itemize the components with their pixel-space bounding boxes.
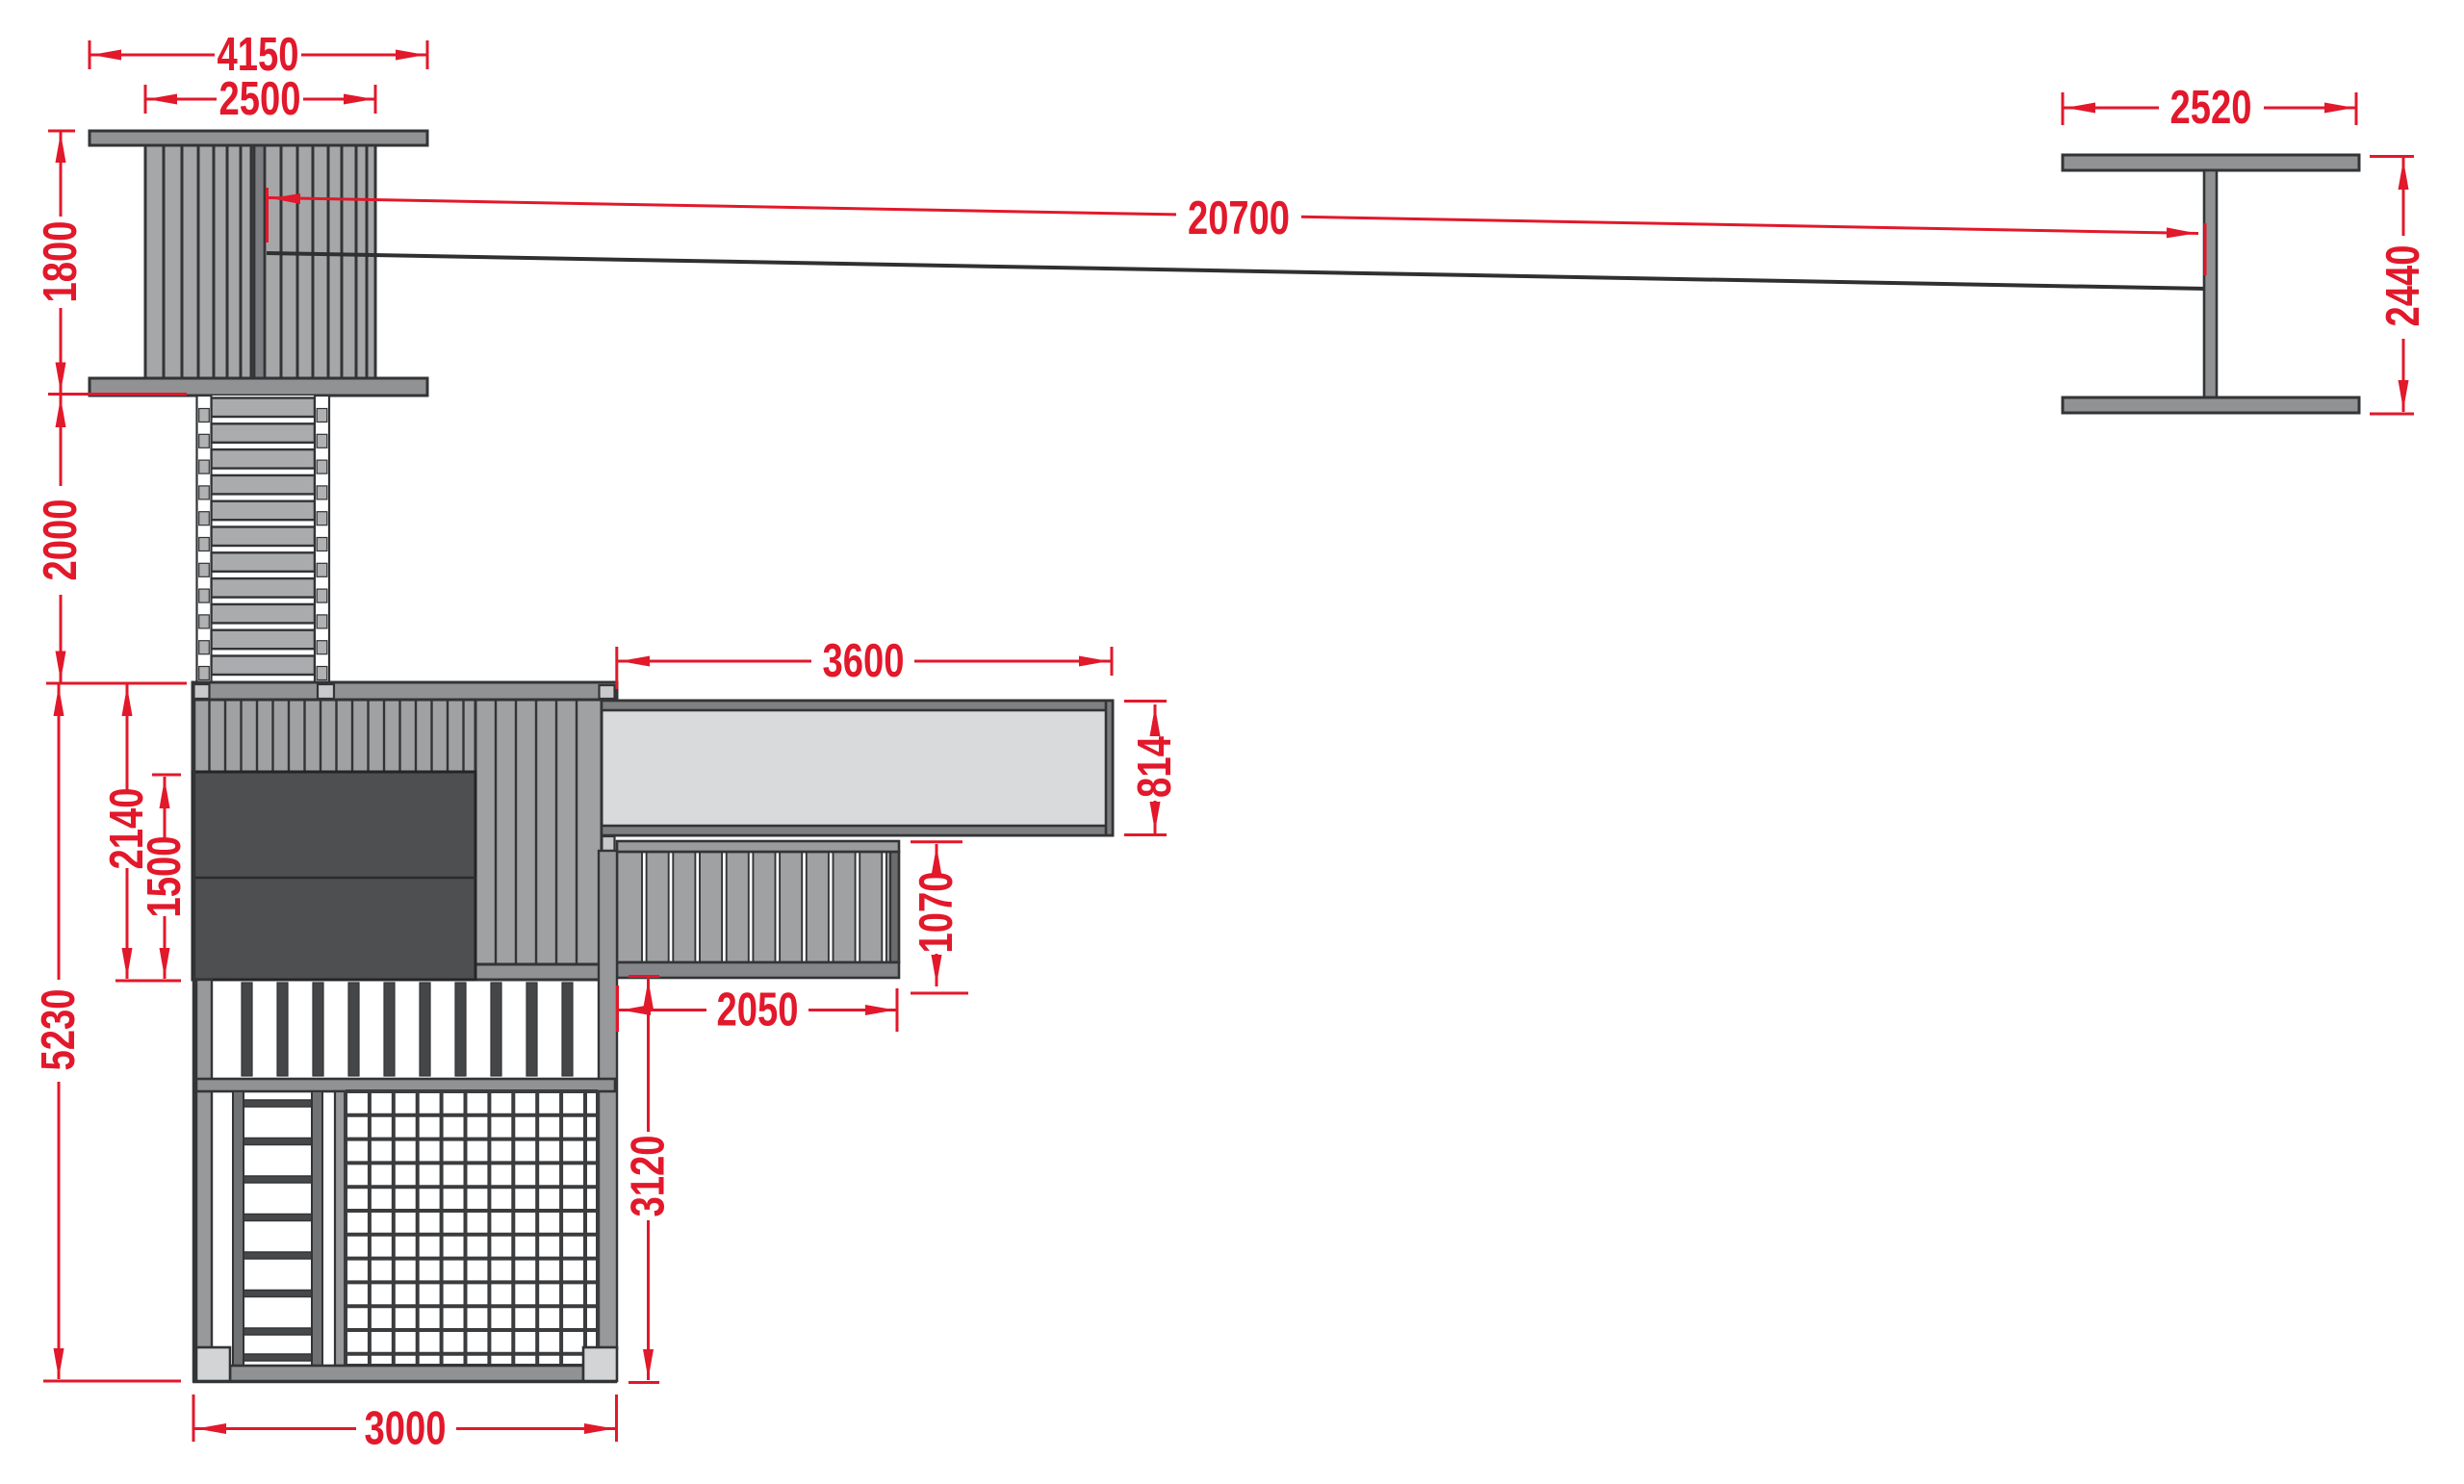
svg-text:1800: 1800 xyxy=(35,221,87,303)
svg-text:3000: 3000 xyxy=(365,1403,447,1455)
svg-text:1500: 1500 xyxy=(139,836,191,918)
svg-text:3120: 3120 xyxy=(623,1136,675,1217)
svg-text:5230: 5230 xyxy=(33,989,85,1071)
svg-text:2520: 2520 xyxy=(2170,82,2252,134)
svg-text:814: 814 xyxy=(1129,736,1181,798)
svg-text:2440: 2440 xyxy=(2377,245,2429,327)
svg-text:3600: 3600 xyxy=(823,635,905,687)
svg-text:2500: 2500 xyxy=(219,73,301,125)
svg-text:1070: 1070 xyxy=(911,872,962,954)
svg-text:20700: 20700 xyxy=(1188,192,1290,244)
svg-text:2000: 2000 xyxy=(35,499,87,581)
svg-text:2050: 2050 xyxy=(717,985,799,1036)
